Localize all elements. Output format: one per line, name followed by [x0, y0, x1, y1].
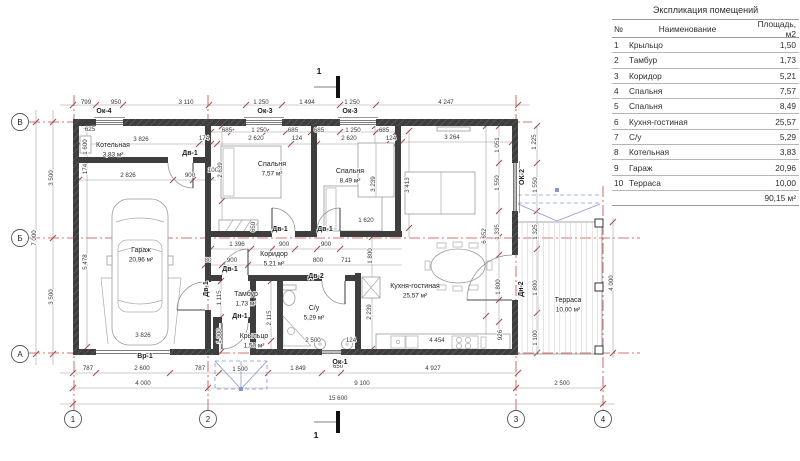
table-row: 10Терраса10,00 [612, 176, 799, 191]
dimension-label: 3 413 [404, 177, 411, 193]
dimension-label: 1 250 [253, 99, 269, 106]
dimension-label: 1 800 [532, 280, 539, 296]
total-area: 90,15 м² [746, 193, 799, 203]
dimension-label: 4 000 [608, 275, 615, 291]
dimension-label: 5 478 [82, 254, 89, 270]
dimension-label: 3 239 [370, 176, 377, 192]
dimension-label: 1 800 [495, 279, 502, 295]
room-name-label: Терраса [555, 297, 582, 304]
table-row: 3Коридор5,21 [612, 69, 799, 84]
room-name-label: С/у [309, 305, 320, 312]
terrace-deck [518, 219, 603, 354]
opening-label: Ок-3 [342, 108, 357, 115]
table-cell: 6 [612, 117, 629, 127]
table-cell: 10 [612, 178, 629, 188]
opening-label: Дв-1 [203, 281, 210, 297]
floor-plan-sheet: 1234ВБА 7999503 1101 2501 4941 2504 2476… [0, 0, 800, 461]
dimension-label: 3 826 [135, 332, 151, 339]
table-cell: 5,21 [746, 71, 799, 81]
section-mark-label: 1 [317, 66, 322, 76]
opening-label: Дв-1 [182, 150, 198, 157]
garage-gate-vr1 [96, 349, 170, 355]
table-row: 5Спальня8,49 [612, 99, 799, 114]
table-cell: С/у [629, 132, 746, 142]
dimension-label: 1 620 [358, 217, 374, 224]
opening-label: Дв-1 [272, 226, 288, 233]
room-name-label: Тамбур [234, 290, 258, 298]
dimension-label: 1 800 [367, 248, 374, 264]
grid-bubble-label: Б [17, 234, 22, 243]
dimension-label: 124 [292, 135, 303, 142]
dimension-label: 685 [288, 127, 299, 134]
window-ok3-b [340, 119, 376, 126]
table-cell: 8 [612, 147, 629, 157]
room-name-label: Кухня-гостиная [390, 283, 440, 290]
room-name-label: Спальня [336, 168, 364, 175]
dimension-label: 1 550 [532, 177, 539, 193]
table-row: 1Крыльцо1,50 [612, 38, 799, 53]
dimension-label: 900 [321, 241, 332, 248]
dimension-label: 1 115 [216, 290, 223, 306]
window-ok3-a [246, 119, 282, 126]
grid-bubble-label: 4 [601, 415, 606, 424]
dimension-label: 2 620 [248, 135, 264, 142]
dimension-label: 900 [185, 172, 196, 179]
opening-label: Ок-3 [257, 108, 272, 115]
header-num: № [612, 24, 629, 34]
table-cell: 2 [612, 55, 629, 65]
table-row: 4Спальня7,57 [612, 84, 799, 99]
table-cell: 8,49 [746, 101, 799, 111]
dimension-label: 3 110 [178, 99, 194, 106]
room-area-label: 20,96 м² [129, 257, 153, 264]
window-ok1 [322, 349, 341, 355]
room-name-label: Коридор [260, 251, 288, 258]
table-cell: 25,57 [746, 117, 799, 127]
dimension-label: 800 [313, 257, 324, 264]
dimension-label: 7 000 [31, 230, 38, 246]
dimension-label: 9 100 [354, 380, 370, 387]
dimension-label: 3 500 [48, 289, 55, 305]
room-name-label: Спальня [258, 161, 286, 168]
table-cell: 4 [612, 86, 629, 96]
table-cell: 3 [612, 71, 629, 81]
dimension-label: 1 335 [494, 224, 501, 240]
header-name: Наименование [629, 24, 746, 34]
table-cell: Спальня [629, 86, 746, 96]
room-name-label: Гараж [131, 247, 151, 254]
dimension-label: 4 000 [135, 380, 151, 387]
dimension-label: 1 051 [494, 137, 501, 153]
dimension-label: 2 639 [217, 162, 224, 178]
opening-label: Дв-2 [308, 273, 324, 280]
opening-label: Ок-4 [96, 108, 111, 115]
dimension-label: 926 [497, 329, 504, 340]
dimension-label: 1 550 [494, 175, 501, 191]
table-cell: Крыльцо [629, 40, 746, 50]
dimension-label: 2 500 [554, 380, 570, 387]
dimension-label: 2 620 [341, 135, 357, 142]
room-area-label: 5,21 м² [264, 261, 285, 268]
dimension-label: 1 100 [532, 330, 539, 346]
dimension-label: 900 [227, 257, 238, 264]
dimension-label: 2 500 [305, 337, 321, 344]
window-ok2 [512, 161, 520, 213]
table-cell: Тамбур [629, 55, 746, 65]
table-cell: Гараж [629, 163, 746, 173]
table-cell: 1,50 [746, 40, 799, 50]
room-table-rows: 1Крыльцо1,502Тамбур1,733Коридор5,214Спал… [612, 38, 799, 191]
dimension-label: 3 500 [48, 170, 55, 186]
table-row: 9Гараж20,96 [612, 160, 799, 175]
table-title: Экспликация помещений [612, 2, 799, 19]
dimension-label: 900 [279, 241, 290, 248]
table-cell: 9 [612, 163, 629, 173]
dimension-label: 2 600 [134, 365, 150, 372]
table-cell: Коридор [629, 71, 746, 81]
room-area-label: 10,00 м² [556, 307, 580, 314]
table-cell: Котельная [629, 147, 746, 157]
dimension-label: 685 [222, 127, 233, 134]
dimension-label: 625 [85, 126, 96, 133]
opening-label: Дн-1 [232, 313, 248, 320]
dimension-label: 950 [111, 99, 122, 106]
sofa [405, 172, 475, 214]
dimension-label: 3 826 [133, 136, 149, 143]
dimension-label: 124 [346, 337, 357, 344]
grid-bubble-label: 2 [206, 415, 211, 424]
table-cell: 3,83 [746, 147, 799, 157]
room-labels: Котельная3,83 м²Гараж20,96 м²Спальня7,57… [96, 142, 581, 350]
table-cell: 7 [612, 132, 629, 142]
dimension-label: 80 [205, 257, 212, 264]
car [101, 199, 181, 345]
tv-console [437, 127, 470, 131]
opening-label: Ок-1 [332, 359, 347, 366]
section-mark-label: 1 [314, 430, 319, 440]
dimension-label: 787 [195, 365, 206, 372]
dimension-label: 1 500 [232, 366, 248, 373]
table-cell: Кухня-гостиная [629, 117, 746, 127]
dimension-label: 1 396 [229, 241, 245, 248]
table-total-row: 90,15 м² [612, 191, 799, 206]
dimension-label: 15 600 [329, 395, 348, 402]
opening-label: Вр-1 [137, 353, 153, 360]
room-area-label: 1,50 м² [244, 343, 265, 350]
room-area-label: 7,57 м² [262, 171, 283, 178]
room-schedule-table: Экспликация помещений № Наименование Пло… [612, 2, 799, 206]
table-cell: 1 [612, 40, 629, 50]
table-cell: Спальня [629, 101, 746, 111]
room-area-label: 5,29 м² [304, 315, 325, 322]
dimension-label: 6 652 [481, 228, 488, 244]
dimension-label: 4 927 [425, 365, 441, 372]
header-area: Площадь, м2 [746, 19, 799, 39]
room-area-label: 3,83 м² [103, 152, 124, 159]
room-name-label: Котельная [96, 142, 130, 149]
grid-bubble-label: 3 [514, 415, 519, 424]
grid-bubble-label: В [17, 118, 22, 127]
table-cell: 20,96 [746, 163, 799, 173]
dimension-label: 1 600 [82, 139, 89, 155]
dimension-label: 3 264 [444, 134, 460, 141]
grid-bubble-label: 1 [71, 415, 76, 424]
dimension-label: 1 494 [299, 99, 315, 106]
dimension-label: 685 [314, 127, 325, 134]
opening-label: ОК-2 [519, 169, 526, 185]
table-cell: 10,00 [746, 178, 799, 188]
dimension-label: 787 [83, 365, 94, 372]
dimension-label: 650 [250, 221, 257, 232]
dimension-label: 711 [341, 257, 351, 264]
room-area-label: 1,73 м² [236, 301, 257, 308]
dimension-label: 174 [82, 163, 89, 174]
dimension-label: 1 250 [344, 99, 360, 106]
room-area-label: 25,57 м² [403, 293, 427, 300]
door-bathroom [322, 281, 345, 304]
opening-label: Дв-1 [222, 266, 238, 273]
dimension-label: 685 [379, 127, 390, 134]
opening-label: Дн-2 [518, 281, 525, 297]
dimension-label: 1 225 [531, 134, 538, 150]
dimension-label: 1 325 [532, 224, 539, 240]
dimension-label: 4 247 [438, 99, 454, 106]
dimension-label: 2 826 [120, 172, 136, 179]
dimension-label: 1 250 [345, 127, 361, 134]
door-garage [177, 282, 205, 310]
room-name-label: Крыльцо [240, 333, 269, 340]
table-cell: 5,29 [746, 132, 799, 142]
table-row: 8Котельная3,83 [612, 145, 799, 160]
table-row: 2Тамбур1,73 [612, 53, 799, 68]
dimension-label: 1 250 [251, 127, 267, 134]
table-header-row: № Наименование Площадь, м2 [612, 19, 799, 38]
opening-label: Дв-1 [317, 226, 333, 233]
room-area-label: 8,49 м² [340, 178, 361, 185]
window-ok4 [96, 119, 123, 126]
table-cell: 5 [612, 101, 629, 111]
dimension-label: 799 [81, 99, 92, 106]
dimension-label: 2 115 [266, 310, 273, 326]
table-row: 7С/у5,29 [612, 130, 799, 145]
dimension-label: 1 849 [290, 365, 306, 372]
dimension-label: 124 [386, 135, 397, 142]
grid-bubble-label: А [17, 350, 23, 359]
dimension-label: 1 000 [216, 328, 223, 344]
table-row: 6Кухня-гостиная25,57 [612, 114, 799, 129]
dimension-label: 174 [199, 135, 210, 142]
dimension-label: 2 239 [366, 304, 373, 320]
table-cell: Терраса [629, 178, 746, 188]
table-cell: 7,57 [746, 86, 799, 96]
table-cell: 1,73 [746, 55, 799, 65]
dimension-label: 4 454 [429, 337, 445, 344]
